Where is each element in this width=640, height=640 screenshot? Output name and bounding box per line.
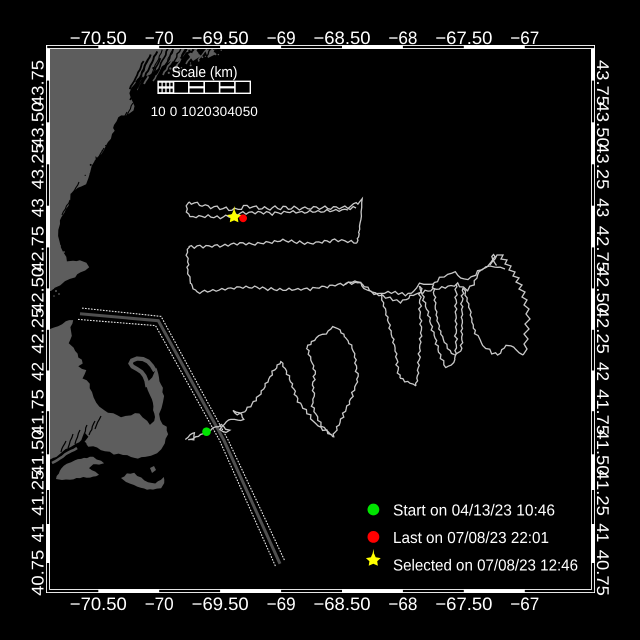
svg-text:42.25: 42.25 [29, 308, 48, 354]
svg-text:43.25: 43.25 [29, 143, 48, 189]
svg-text:−68.50: −68.50 [314, 28, 371, 48]
svg-text:−69: −69 [267, 28, 296, 48]
svg-text:42: 42 [593, 362, 612, 381]
svg-text:Last on 07/08/23 22:01: Last on 07/08/23 22:01 [393, 530, 549, 547]
svg-text:10: 10 [181, 104, 196, 119]
svg-text:42.25: 42.25 [593, 308, 612, 354]
svg-text:43.75: 43.75 [593, 60, 612, 106]
svg-text:50: 50 [243, 104, 258, 119]
svg-text:41.25: 41.25 [29, 470, 48, 516]
svg-text:Start on 04/13/23 10:46: Start on 04/13/23 10:46 [393, 503, 555, 520]
svg-text:41.25: 41.25 [593, 470, 612, 516]
svg-text:−68.50: −68.50 [314, 594, 371, 614]
svg-text:40.75: 40.75 [593, 550, 612, 596]
svg-text:41.50: 41.50 [29, 430, 48, 476]
svg-text:−68: −68 [388, 28, 417, 48]
svg-text:42.75: 42.75 [29, 226, 48, 272]
svg-text:42.75: 42.75 [593, 226, 612, 272]
svg-text:40: 40 [227, 104, 242, 119]
svg-text:42: 42 [29, 362, 48, 381]
svg-text:−70.50: −70.50 [70, 594, 127, 614]
svg-text:40.75: 40.75 [29, 550, 48, 596]
svg-text:0: 0 [170, 104, 178, 119]
svg-text:41: 41 [593, 523, 612, 542]
svg-text:41.50: 41.50 [593, 430, 612, 476]
svg-text:10: 10 [151, 104, 166, 119]
svg-text:−67: −67 [510, 594, 539, 614]
svg-text:Scale (km): Scale (km) [172, 64, 238, 81]
svg-text:−69: −69 [267, 594, 296, 614]
svg-text:41: 41 [29, 523, 48, 542]
svg-text:−70: −70 [145, 28, 174, 48]
svg-text:−68: −68 [388, 594, 417, 614]
svg-text:−69.50: −69.50 [192, 28, 249, 48]
svg-text:43: 43 [29, 198, 48, 217]
svg-text:−69.50: −69.50 [192, 594, 249, 614]
svg-text:−67: −67 [510, 28, 539, 48]
svg-text:Selected on 07/08/23 12:46: Selected on 07/08/23 12:46 [393, 558, 578, 575]
svg-text:42.50: 42.50 [593, 267, 612, 313]
svg-text:43.50: 43.50 [29, 102, 48, 148]
svg-text:−67.50: −67.50 [435, 594, 492, 614]
svg-text:−67.50: −67.50 [435, 28, 492, 48]
svg-text:20: 20 [197, 104, 212, 119]
svg-text:−70: −70 [145, 594, 174, 614]
svg-text:43.25: 43.25 [593, 143, 612, 189]
svg-text:41.75: 41.75 [29, 389, 48, 435]
svg-text:42.50: 42.50 [29, 267, 48, 313]
svg-text:−70.50: −70.50 [70, 28, 127, 48]
svg-text:41.75: 41.75 [593, 389, 612, 435]
svg-text:43.75: 43.75 [29, 60, 48, 106]
svg-text:43.50: 43.50 [593, 102, 612, 148]
svg-text:30: 30 [212, 104, 227, 119]
svg-text:43: 43 [593, 198, 612, 217]
